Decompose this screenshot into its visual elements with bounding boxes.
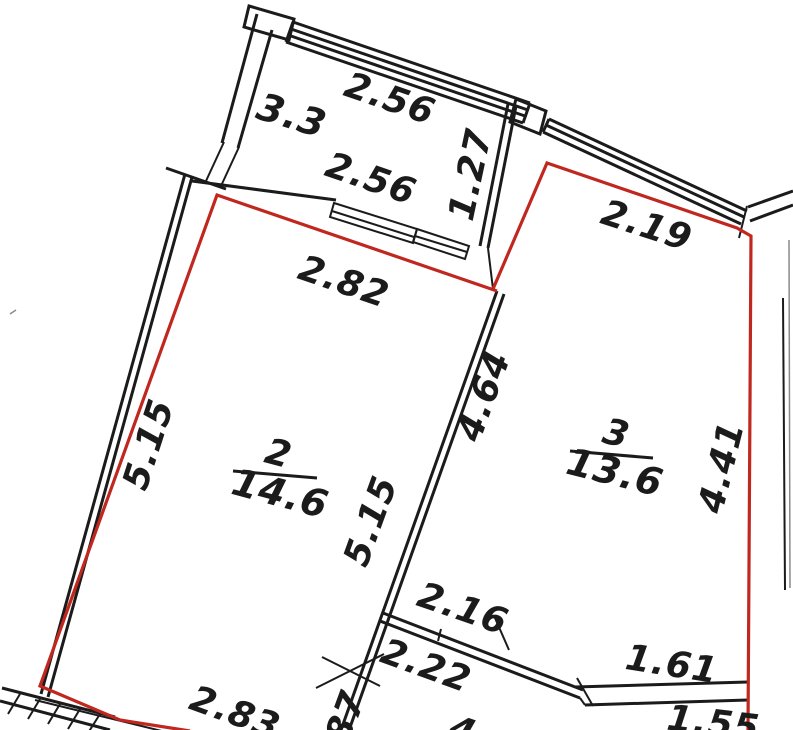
- room4-number-label: 4: [442, 707, 480, 730]
- dim-room3-top: 2.19: [596, 192, 697, 260]
- dim-room2-bottom: 2.83: [184, 678, 285, 730]
- dim-room2-interior: 5.15: [336, 470, 406, 571]
- dim-balcony-side: 1.27: [441, 125, 500, 224]
- floor-plan: 3.3 2.56 2.56 1.27 2.82 5.15 5.15 2 14.6…: [0, 0, 793, 730]
- room3-area-label: 13.6: [562, 439, 668, 505]
- floor-plan-canvas: 3.3 2.56 2.56 1.27 2.82 5.15 5.15 2 14.6…: [0, 0, 793, 730]
- labels: 3.3 2.56 2.56 1.27 2.82 5.15 5.15 2 14.6…: [115, 65, 762, 730]
- dim-hall-top: 2.16: [412, 575, 513, 644]
- dim-room3-right: 4.41: [690, 417, 752, 518]
- room2-area-label: 14.6: [227, 460, 333, 528]
- balcony-area-label: 3.3: [252, 84, 332, 147]
- dim-room2-left: 5.15: [115, 394, 183, 495]
- dim-room2-top: 2.82: [293, 248, 394, 317]
